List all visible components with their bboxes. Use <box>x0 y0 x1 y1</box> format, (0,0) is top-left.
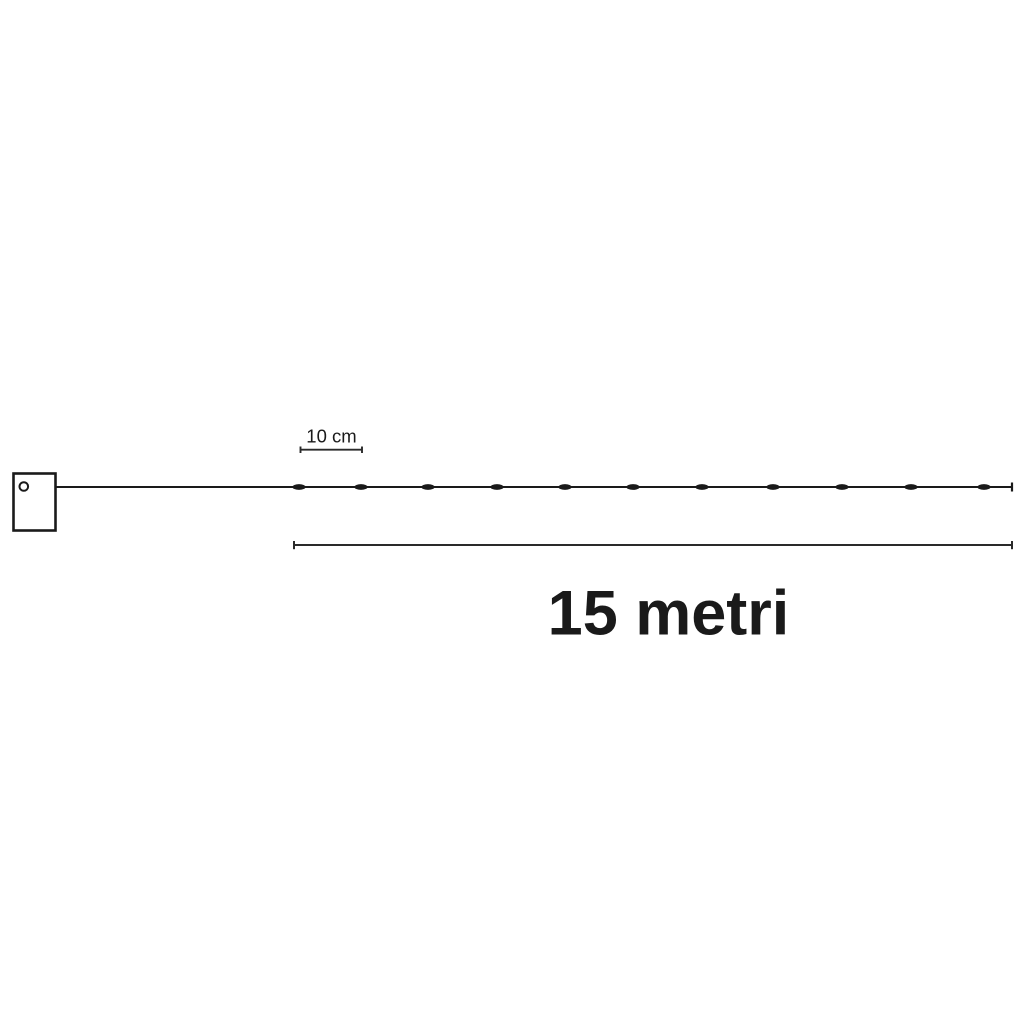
svg-text:10 cm: 10 cm <box>306 426 356 447</box>
svg-text:15 metri: 15 metri <box>548 579 790 649</box>
